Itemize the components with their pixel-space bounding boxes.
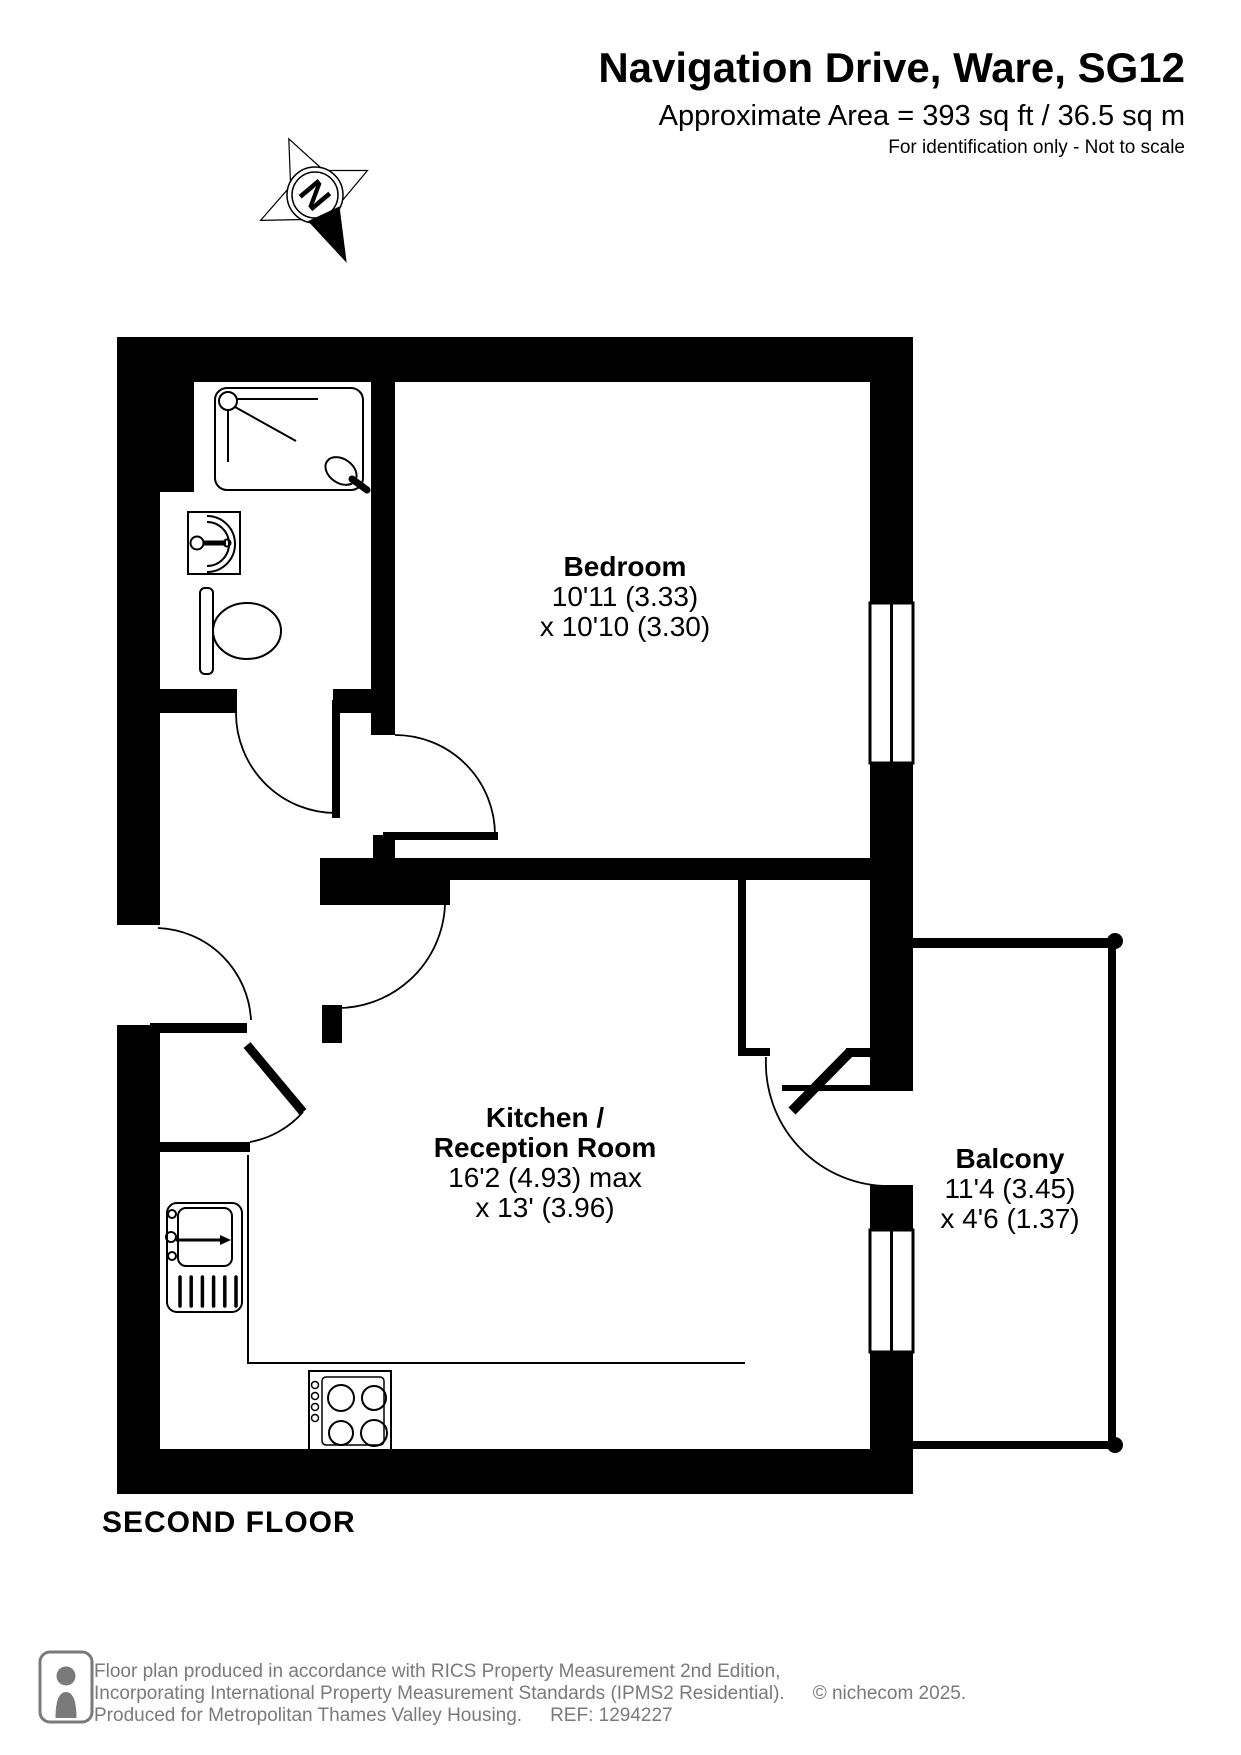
wall-right-d [870,1352,913,1494]
kitchen-label: Kitchen / Reception Room 16'2 (4.93) max… [434,1103,656,1223]
balcony-post-bottom-icon [1107,1437,1123,1453]
entry-door-leaf [150,1023,247,1033]
footer: Floor plan produced in accordance with R… [94,1661,966,1727]
wall-bedroom-left [371,382,395,735]
entry-door-leaf2 [160,1142,250,1152]
balcony-post-top-icon [1107,933,1123,949]
balcony-label: Balcony 11'4 (3.45) x 4'6 (1.37) [940,1144,1079,1234]
kitchen-name1: Kitchen / [434,1103,656,1133]
entry-door-fold-leaf [247,1045,303,1112]
wall-right-a [870,382,913,603]
kitchen-dim1: 16'2 (4.93) max [434,1163,656,1193]
footer-line3-text: Produced for Metropolitan Thames Valley … [94,1705,522,1726]
person-logo-icon [40,1652,92,1722]
identification-disclaimer: For identification only - Not to scale [888,137,1185,159]
balcony-rail-bottom [913,1441,1108,1449]
bedroom-door-arc [395,735,495,835]
bedroom-dim2: x 10'10 (3.30) [540,612,710,642]
balcony-rail-right [1108,944,1116,1449]
wall-bath-bottom-right [333,689,395,713]
walls [117,337,913,1494]
wall-bottom [117,1449,913,1494]
wall-hall-door-stub [322,1005,342,1043]
balcony-dim1: 11'4 (3.45) [940,1174,1079,1204]
footer-copyright: © nichecom 2025. [813,1683,966,1704]
kitchen-window-icon [870,1230,913,1352]
toilet-icon [200,588,281,674]
entry-door-fold-arc [250,1112,303,1142]
footer-line1: Floor plan produced in accordance with R… [94,1661,966,1683]
bedroom-name: Bedroom [540,552,710,582]
page-title: Navigation Drive, Ware, SG12 [598,44,1185,92]
kitchen-name2: Reception Room [434,1133,656,1163]
balcony-door-threshold [782,1085,892,1091]
footer-line2-text: Incorporating International Property Mea… [94,1683,785,1704]
wall-right-step [890,1085,913,1091]
wall-vestibule-thin [738,880,746,1056]
footer-ref: REF: 1294227 [550,1705,673,1726]
compass-rose-icon: N [261,139,368,263]
kitchen-sink-icon [166,1203,242,1312]
entry-door-arc [158,928,251,1020]
hob-icon [309,1371,391,1451]
wall-right-c [870,1185,913,1230]
bathroom-door-leaf [332,700,340,818]
approximate-area: Approximate Area = 393 sq ft / 36.5 sq m [659,100,1185,133]
bedroom-window-icon [870,603,913,763]
floorplan-drawing: N [0,0,1241,1755]
hall-door-arc [333,905,445,1008]
bedroom-label: Bedroom 10'11 (3.33) x 10'10 (3.30) [540,552,710,642]
wall-bath-bottom-left [160,689,237,713]
bedroom-door-leaf [383,832,498,840]
wall-top [117,337,913,382]
wall-vestibule-stub-left [738,1048,770,1056]
wall-left-lower [117,1025,160,1494]
bathroom-door-arc [236,713,336,813]
bedroom-dim1: 10'11 (3.33) [540,582,710,612]
footer-line3: Produced for Metropolitan Thames Valley … [94,1705,966,1727]
kitchen-dim2: x 13' (3.96) [434,1193,656,1223]
wall-right-b [870,763,913,1085]
shower-icon [215,388,367,491]
balcony-dim2: x 4'6 (1.37) [940,1204,1079,1234]
balcony-rail-top [913,938,1108,948]
balcony-door-leaf [792,1052,850,1111]
wall-divider-thick [320,858,450,905]
floor-name: SECOND FLOOR [102,1506,356,1540]
floorplan-page: N Navigation Drive, Ware, SG12 Approxima… [0,0,1241,1755]
wall-left-upper [117,337,160,925]
wall-pillar [160,382,194,492]
bathroom-sink-icon [188,512,240,574]
footer-line2: Incorporating International Property Mea… [94,1683,966,1705]
balcony-name: Balcony [940,1144,1079,1174]
